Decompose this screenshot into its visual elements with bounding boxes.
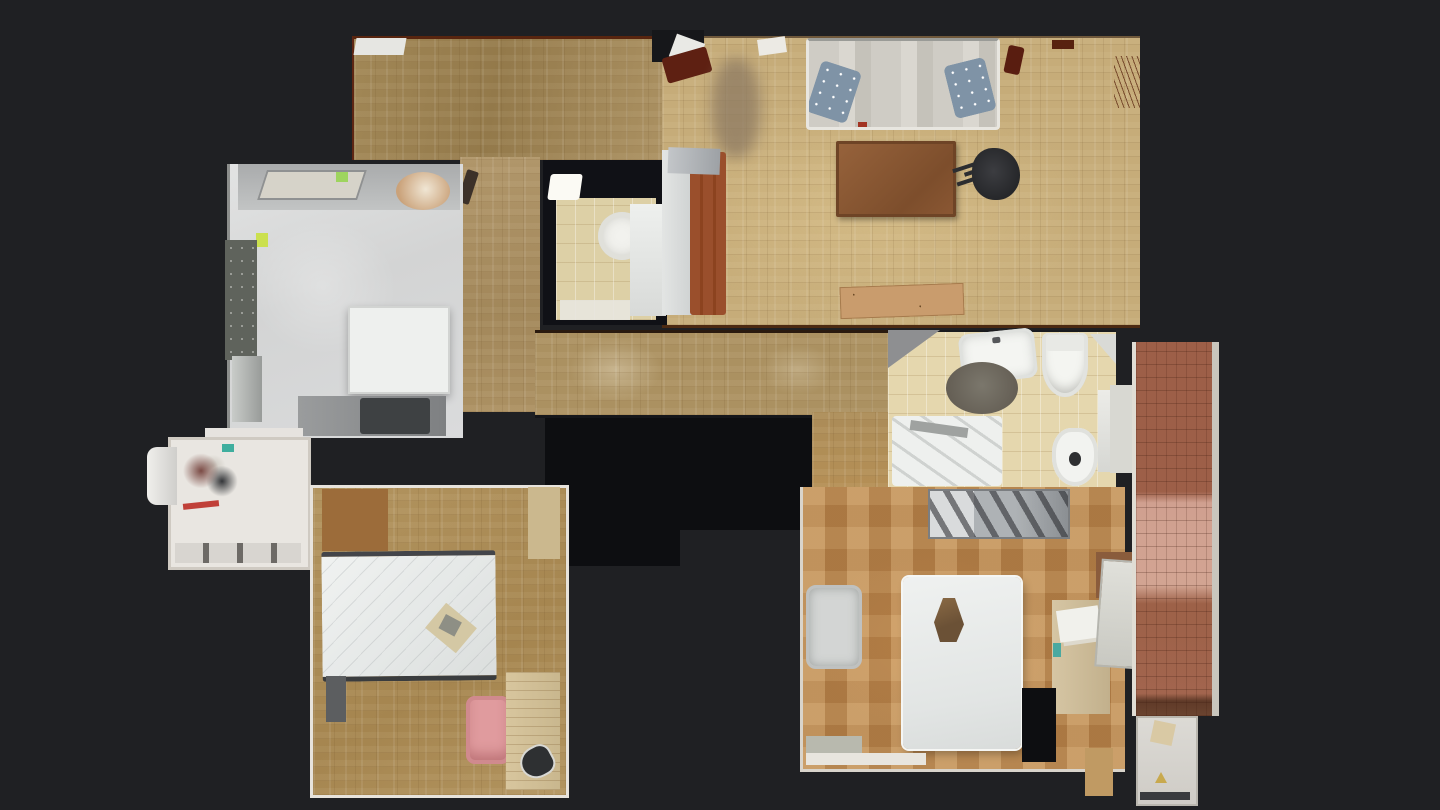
office-chair [958,146,1022,202]
bed-headboard [668,147,721,175]
room-central-hallway [535,330,900,418]
window-sill [1110,385,1134,473]
light-fixture [547,174,583,200]
plant-twigs [1114,56,1140,108]
floor-patch [322,489,388,551]
privacy-blur [712,58,760,158]
stove-top [360,398,430,434]
kitchen-island [348,306,450,394]
wall-fragment [1140,792,1190,800]
bathtub [892,416,1002,486]
unscanned-void [545,412,813,530]
chrome-appliance [232,356,262,422]
utility-threshold [175,543,301,563]
granite-counter [225,240,257,360]
wall-fragment [560,300,630,320]
yellow-marker [1155,772,1167,783]
wall-mark [1052,40,1074,49]
pink-chair [466,696,510,764]
white-rug [354,38,407,55]
floorplan-viewport[interactable] [0,0,1440,810]
kitchen-counter-slab [257,170,367,200]
teal-object [1053,643,1061,657]
gray-box [326,676,346,722]
kitchen-object [396,172,450,210]
armchair [806,585,862,669]
throw-pillow [806,60,862,124]
corridor-vertical [460,157,540,412]
round-rug [946,362,1018,414]
washbasin-counter [630,204,666,316]
wood-plank [839,283,964,319]
toilet [1042,333,1088,397]
bed-bedding [662,150,692,315]
floor-patch [528,487,560,559]
washing-machine [147,447,177,505]
desk-papers [1056,605,1102,643]
throw-pillow [943,57,997,120]
balcony-brick-floor [1132,342,1219,716]
small-red-object [858,122,867,127]
wall-fragment [806,753,926,765]
sticky-note [256,233,268,247]
coffee-table [836,141,956,217]
teal-object [222,444,234,452]
utility-clutter [180,450,240,502]
sticky-note [336,172,348,182]
sofa [806,38,1000,130]
floor-patch [1085,748,1113,796]
unscanned-void [1022,688,1056,762]
double-bed [903,577,1021,749]
floor-patch [1150,720,1176,746]
unscanned-void [560,528,680,566]
bed-wood-frame [690,152,726,315]
wardrobe [928,489,1070,539]
mattress-bed [321,550,496,682]
corridor-to-bedroom [812,412,896,490]
bidet [1052,428,1098,486]
